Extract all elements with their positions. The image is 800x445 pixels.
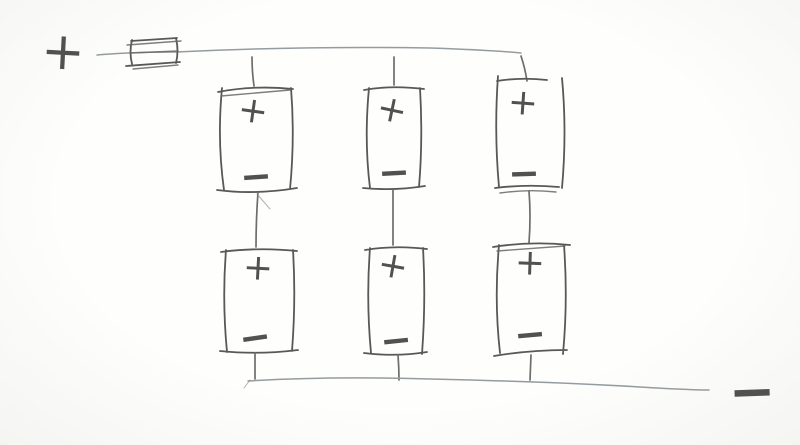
battery-plus-label: +	[507, 81, 540, 124]
series-link-wire-left	[256, 192, 258, 247]
negative-terminal: −	[727, 359, 776, 426]
bottom-drop-wire-middle	[398, 355, 399, 380]
battery-plus-label: +	[235, 89, 271, 134]
pencil-flick	[244, 380, 250, 388]
battery-cell-top-left: + −	[217, 88, 297, 200]
battery-cell-bottom-right: + −	[493, 242, 570, 357]
battery-cell-top-middle: + −	[363, 87, 425, 195]
top-drop-wire-right	[521, 56, 527, 81]
top-drop-wire-left	[252, 57, 254, 86]
battery-cell-bottom-middle: + −	[364, 243, 427, 363]
battery-plus-label: +	[242, 247, 274, 290]
scanned-circuit-sketch: + + − + − + −	[0, 0, 800, 445]
bottom-drop-wire-right	[530, 355, 531, 380]
series-link-wire-right	[529, 191, 530, 243]
bottom-bus-wire	[248, 378, 709, 390]
battery-minus-label: −	[377, 149, 411, 195]
battery-cell-top-right: + −	[495, 76, 565, 196]
battery-cell-bottom-left: + −	[220, 247, 298, 361]
battery-minus-label: −	[507, 150, 540, 195]
battery-minus-label: −	[378, 316, 414, 363]
battery-minus-label: −	[512, 311, 548, 358]
battery-plus-label: +	[373, 87, 411, 133]
battery-plus-label: +	[375, 243, 412, 289]
circuit-schematic: + + − + − + −	[0, 0, 800, 445]
battery-plus-label: +	[514, 242, 546, 284]
negative-terminal-label: −	[727, 359, 776, 426]
positive-terminal: +	[40, 21, 87, 83]
positive-terminal-label: +	[40, 21, 87, 83]
battery-minus-label: −	[239, 153, 274, 199]
fuse-icon	[126, 38, 181, 69]
